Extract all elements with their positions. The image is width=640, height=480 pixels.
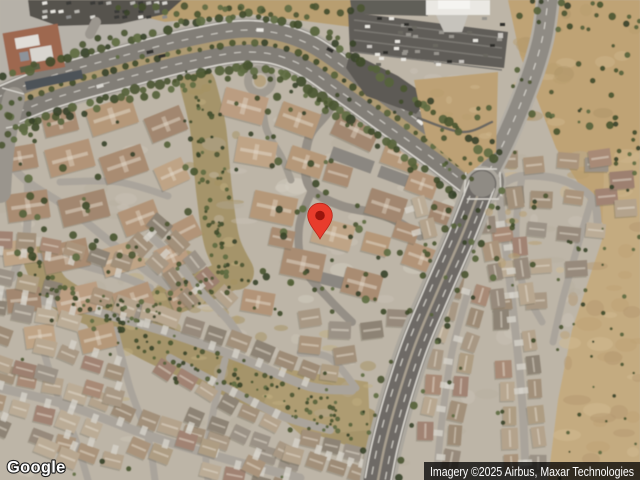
svg-text:Imagery ©2025 Airbus, Maxar Te: Imagery ©2025 Airbus, Maxar Technologies bbox=[430, 464, 634, 479]
svg-text:Google: Google bbox=[7, 459, 66, 477]
